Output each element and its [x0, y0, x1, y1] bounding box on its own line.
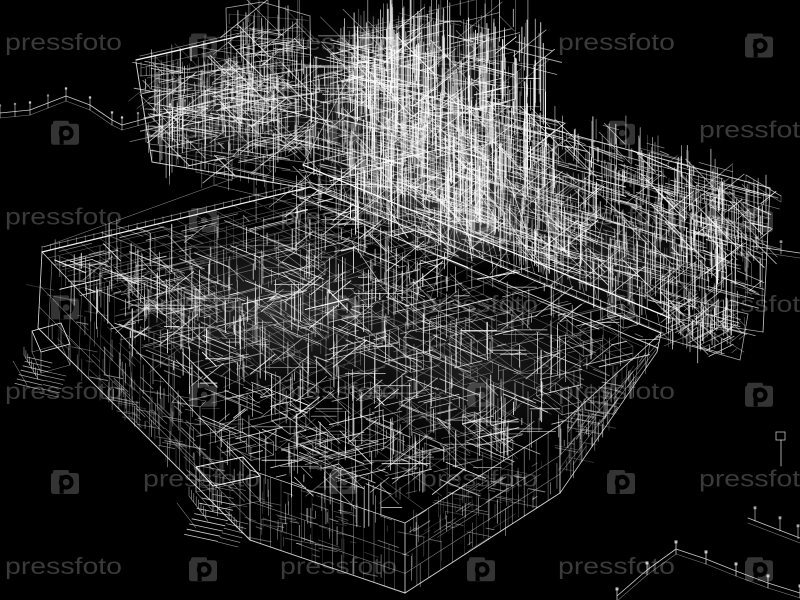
svg-text:pressfoto: pressfoto — [699, 466, 800, 492]
svg-text:pressfoto: pressfoto — [5, 553, 122, 579]
svg-text:pressfoto: pressfoto — [5, 29, 122, 55]
svg-text:pressfoto: pressfoto — [421, 466, 538, 492]
svg-text:pressfoto: pressfoto — [699, 116, 800, 142]
svg-text:pressfoto: pressfoto — [5, 204, 122, 230]
svg-text:pressfoto: pressfoto — [558, 553, 675, 579]
svg-text:pressfoto: pressfoto — [5, 378, 122, 404]
svg-text:pressfoto: pressfoto — [143, 466, 260, 492]
svg-text:pressfoto: pressfoto — [558, 29, 675, 55]
